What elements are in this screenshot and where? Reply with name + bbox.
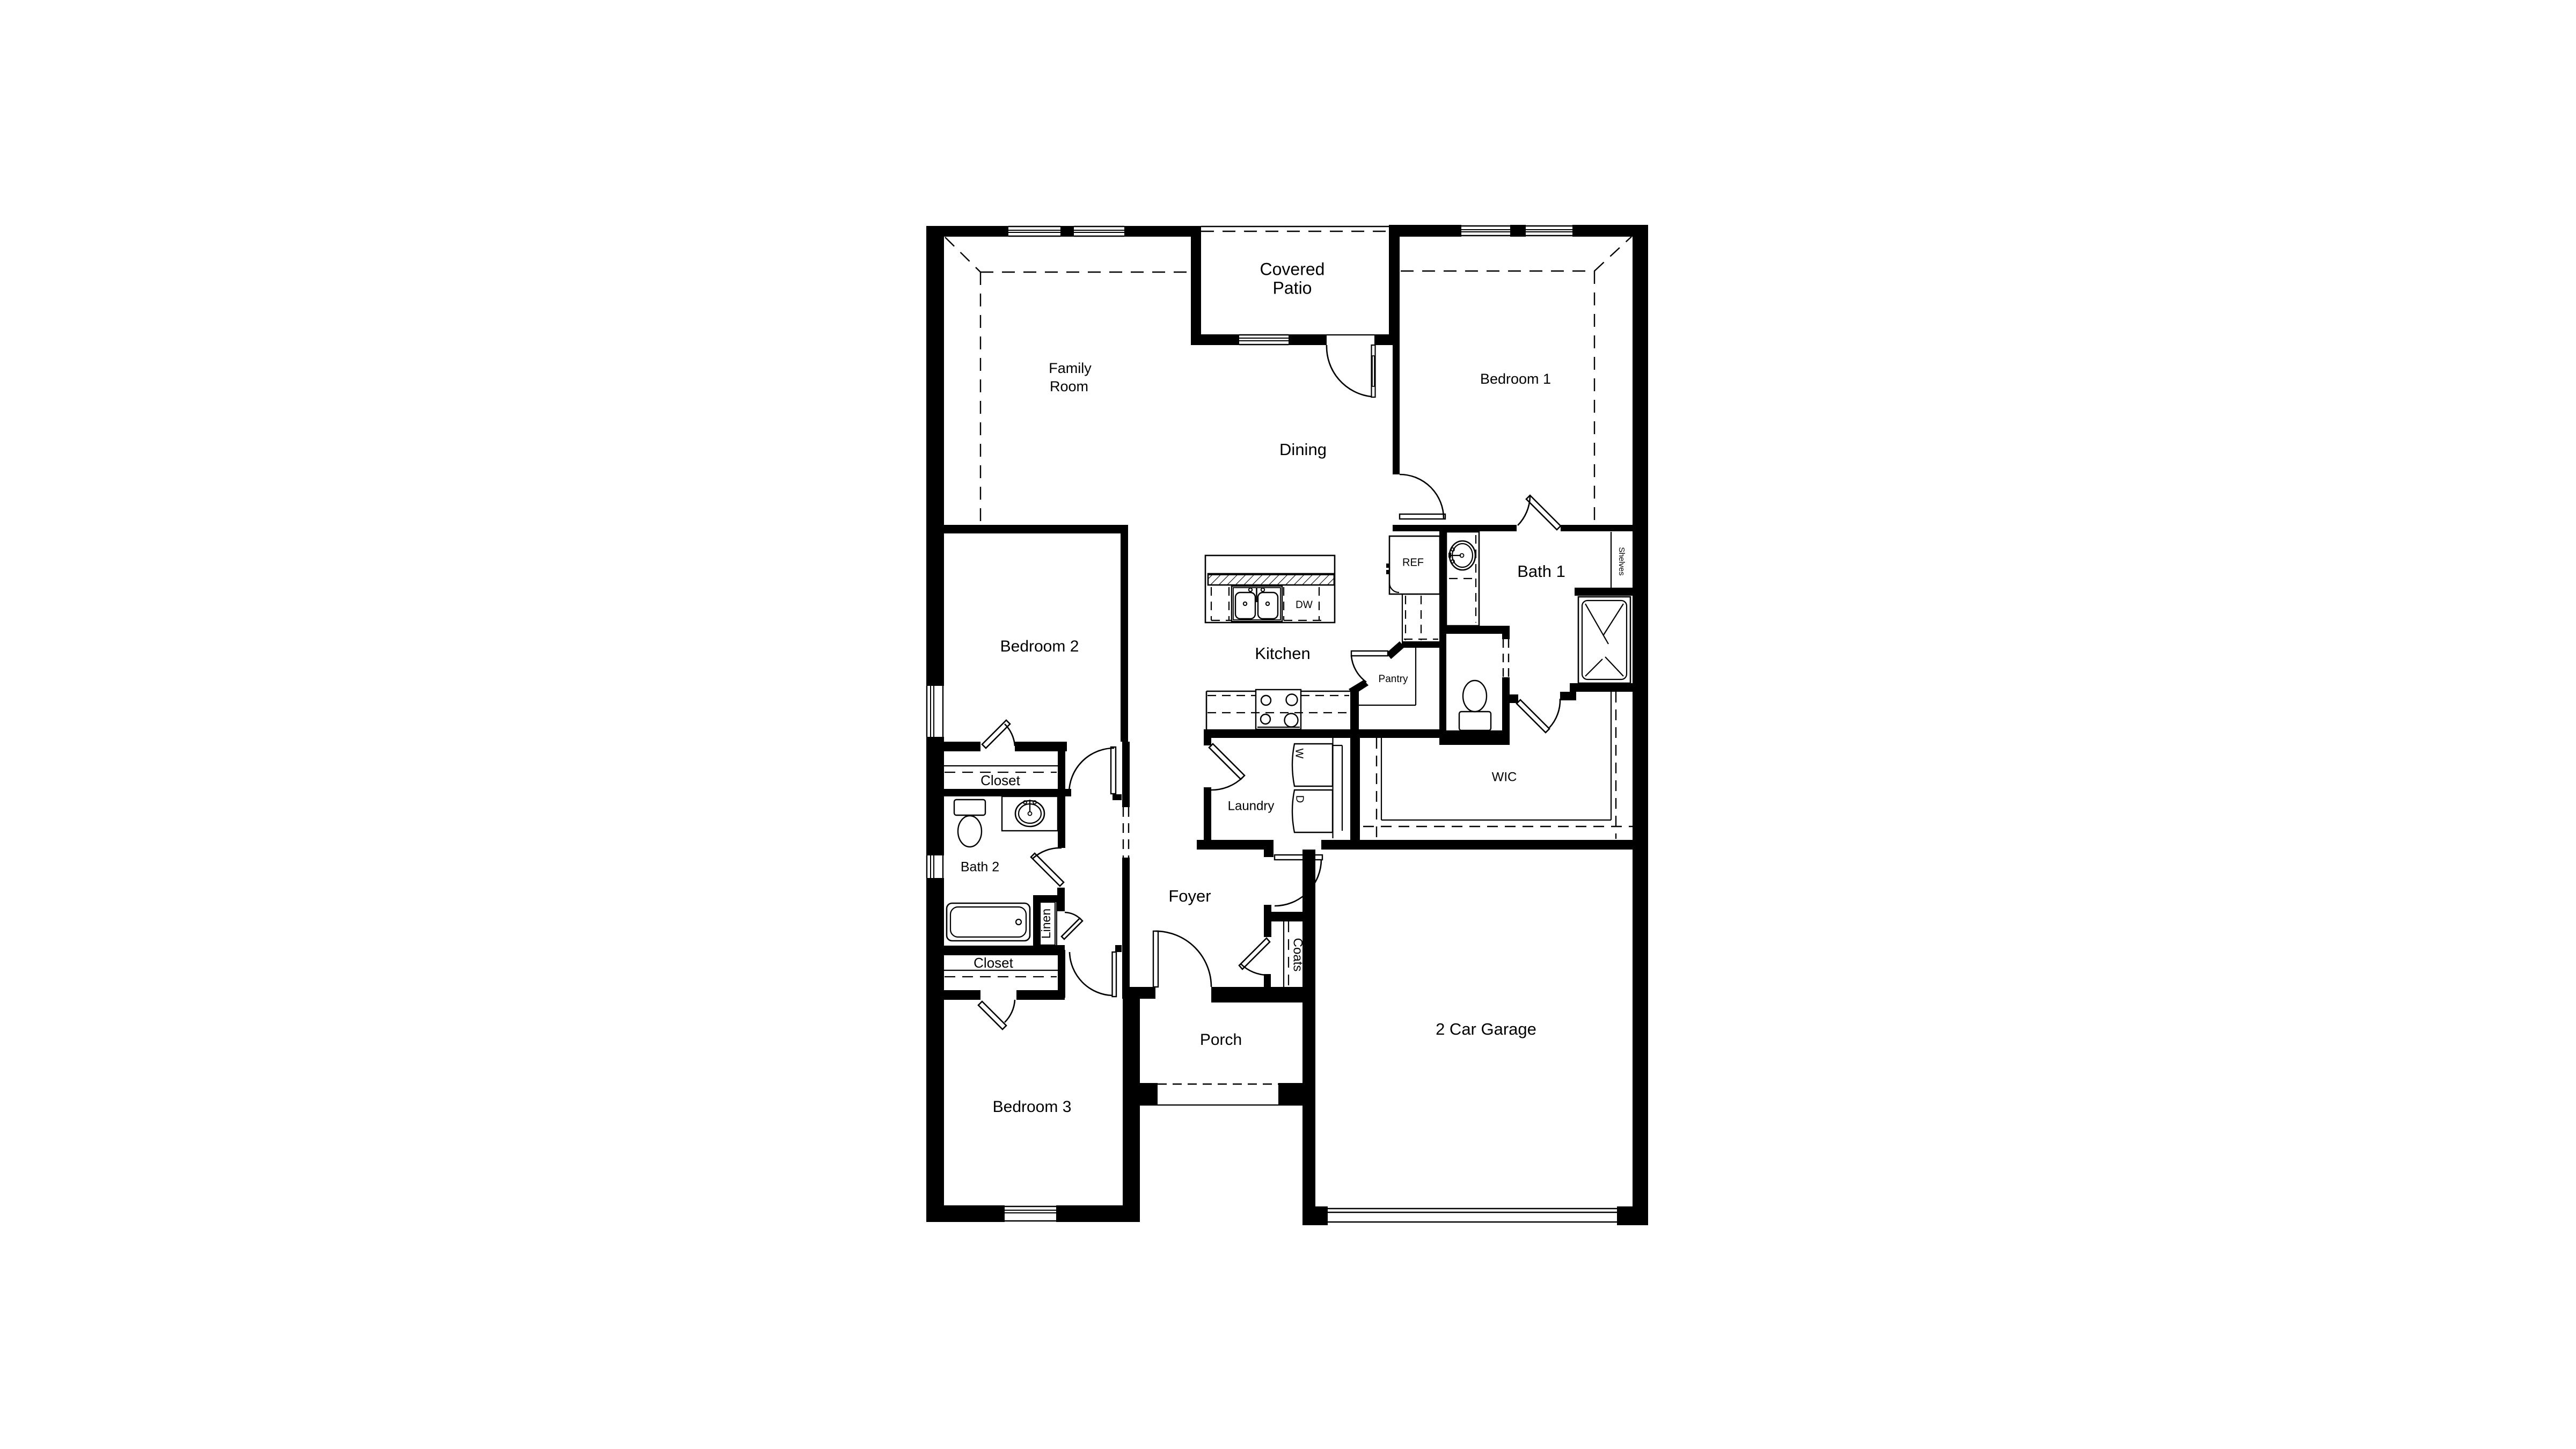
svg-text:Bath 1: Bath 1 xyxy=(1517,562,1565,581)
svg-text:Bedroom 1: Bedroom 1 xyxy=(1480,371,1551,387)
svg-text:Bath 2: Bath 2 xyxy=(961,860,999,875)
svg-text:Bedroom 2: Bedroom 2 xyxy=(1000,638,1079,655)
svg-text:Laundry: Laundry xyxy=(1228,799,1275,813)
svg-text:Foyer: Foyer xyxy=(1168,887,1211,905)
svg-text:Shelves: Shelves xyxy=(1617,547,1626,575)
svg-text:W: W xyxy=(1293,749,1305,759)
svg-text:Closet: Closet xyxy=(980,772,1020,788)
svg-text:Kitchen: Kitchen xyxy=(1255,644,1310,663)
svg-text:Linen: Linen xyxy=(1039,909,1053,939)
svg-text:WIC: WIC xyxy=(1492,770,1517,784)
svg-text:DW: DW xyxy=(1296,599,1313,611)
svg-text:2 Car Garage: 2 Car Garage xyxy=(1436,1020,1536,1038)
svg-text:REF: REF xyxy=(1402,557,1424,568)
svg-text:Dining: Dining xyxy=(1279,440,1327,459)
svg-text:Room: Room xyxy=(1050,378,1088,394)
svg-text:Patio: Patio xyxy=(1273,278,1312,297)
svg-text:Pantry: Pantry xyxy=(1379,674,1408,685)
svg-text:Porch: Porch xyxy=(1200,1031,1242,1049)
svg-text:Closet: Closet xyxy=(974,955,1013,971)
svg-text:D: D xyxy=(1294,795,1306,803)
svg-text:Bedroom 3: Bedroom 3 xyxy=(993,1098,1072,1116)
svg-text:Family: Family xyxy=(1049,360,1092,376)
svg-text:Covered: Covered xyxy=(1260,259,1325,279)
